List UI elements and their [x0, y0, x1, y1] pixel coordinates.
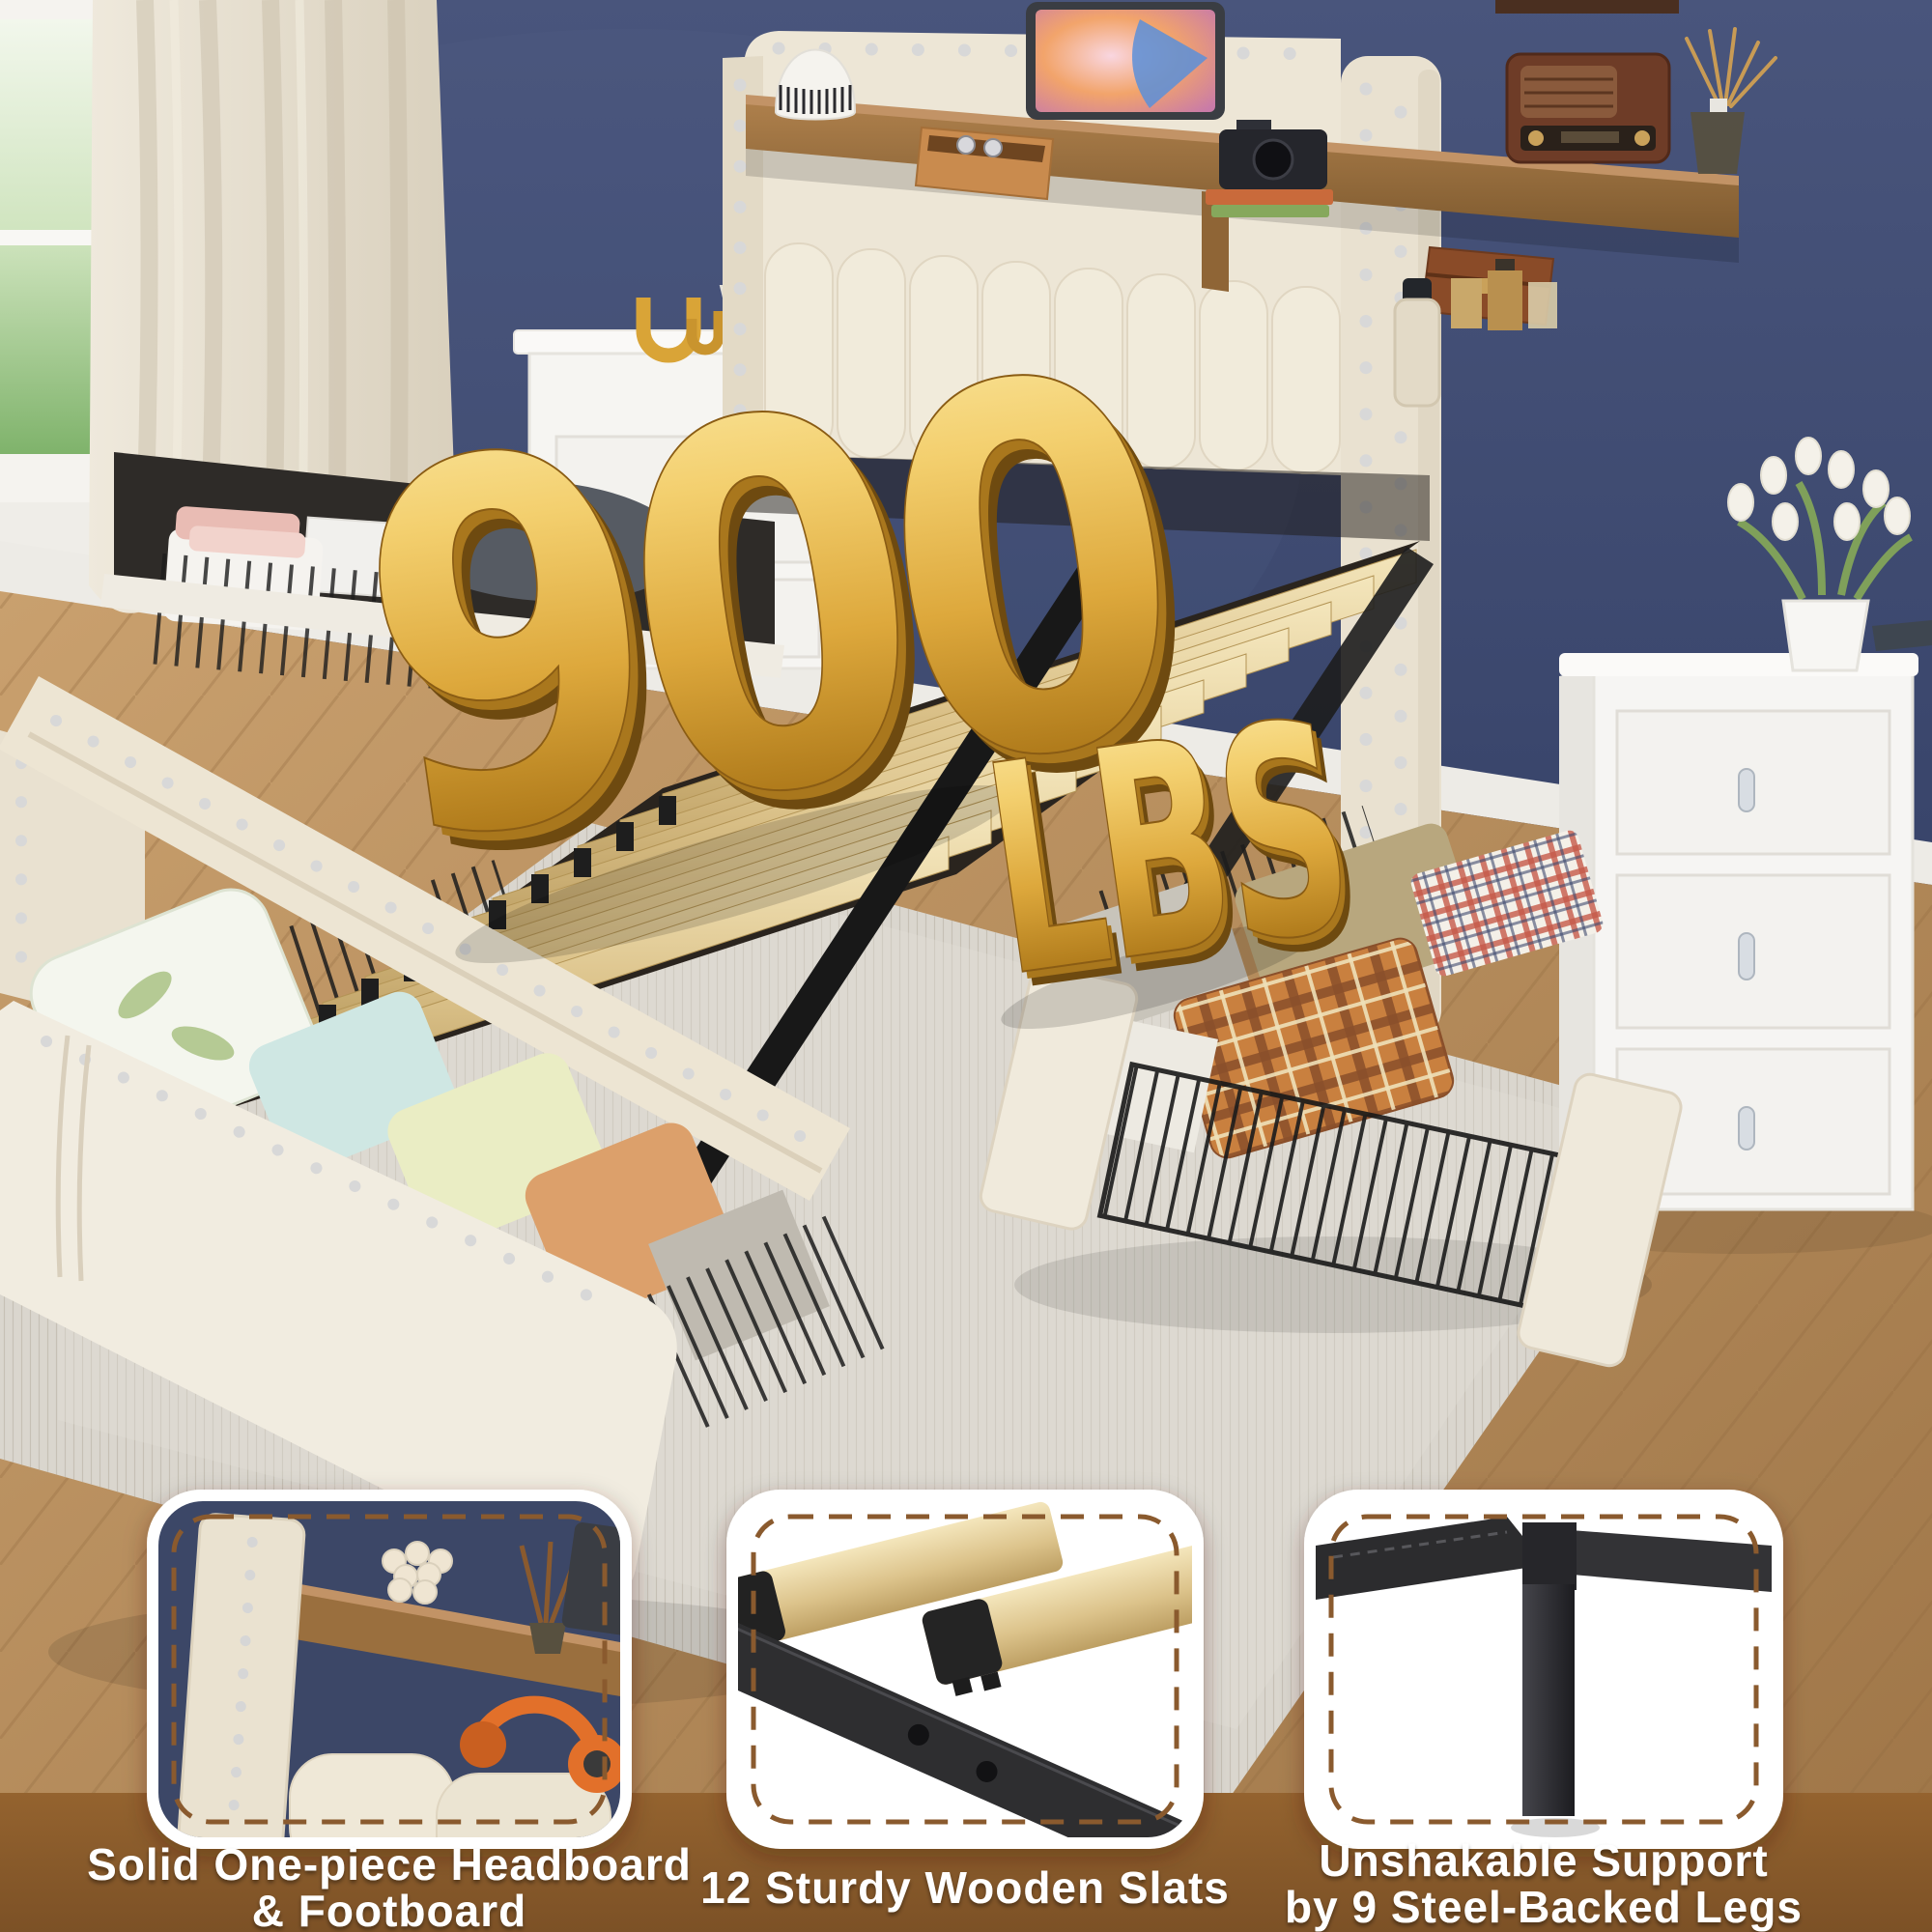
flower-pot — [1783, 601, 1868, 670]
headline-unit: LBS — [969, 659, 1364, 1041]
card-image-slats — [685, 1500, 1224, 1887]
watch-box — [916, 128, 1053, 199]
books — [1206, 189, 1333, 217]
caption-headboard-line1: Solid One-piece Headboard — [87, 1839, 692, 1889]
steel-leg-closeup — [1522, 1584, 1575, 1816]
feature-card-legs — [1304, 1490, 1783, 1849]
caption-legs-line1: Unshakable Support — [1319, 1835, 1768, 1886]
crystal-knob — [1739, 933, 1754, 980]
product-marketing-image: 900 900 900 LBS LBS LBS — [0, 0, 1932, 1932]
caption-slats: 12 Sturdy Wooden Slats — [700, 1862, 1230, 1913]
camera — [1219, 120, 1327, 189]
feature-card-headboard — [147, 1490, 652, 1880]
vintage-radio — [1507, 54, 1669, 162]
picture-frame-sliver — [1495, 0, 1679, 14]
caption-headboard-line2: & Footboard — [252, 1886, 526, 1932]
crystal-knob — [1739, 1107, 1754, 1150]
card-image-legs — [1316, 1501, 1772, 1837]
feature-card-slats — [685, 1490, 1224, 1887]
rail-junction — [1522, 1522, 1577, 1590]
headboard-post-closeup — [178, 1514, 305, 1853]
crystal-knob — [1739, 769, 1754, 811]
caption-legs-line2: by 9 Steel-Backed Legs — [1285, 1882, 1803, 1932]
nightstand-right-top — [1559, 653, 1918, 676]
tablet — [1026, 2, 1225, 120]
